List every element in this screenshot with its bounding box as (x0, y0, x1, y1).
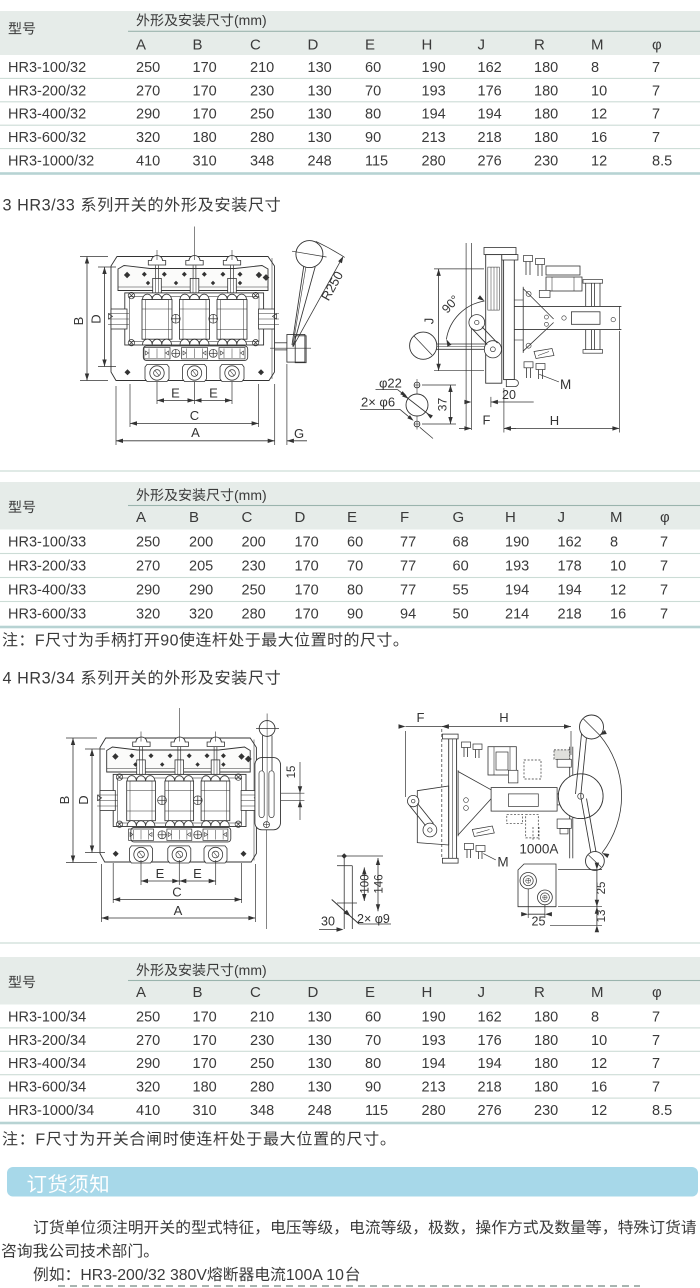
svg-text:230: 230 (242, 559, 266, 575)
svg-text:8: 8 (610, 535, 618, 551)
svg-text:2× φ9: 2× φ9 (357, 912, 390, 926)
svg-text:7: 7 (652, 60, 660, 76)
svg-text:320: 320 (136, 130, 160, 146)
svg-text:HR3-1000/32: HR3-1000/32 (8, 154, 94, 170)
svg-text:(mm): (mm) (234, 962, 267, 978)
svg-text:16: 16 (591, 1080, 607, 1096)
svg-text:HR3-600/33: HR3-600/33 (8, 607, 86, 623)
svg-text:8.5: 8.5 (652, 1103, 672, 1119)
svg-text:A: A (174, 903, 183, 918)
svg-text:B: B (57, 796, 72, 805)
svg-text:180: 180 (534, 83, 558, 99)
svg-text:180: 180 (193, 130, 217, 146)
svg-text:D: D (308, 984, 319, 1001)
svg-text:170: 170 (295, 559, 319, 575)
svg-text:HR3-200/32 380V: HR3-200/32 380V (80, 1267, 207, 1284)
svg-text:φ: φ (652, 984, 662, 1001)
svg-text:H: H (550, 413, 559, 428)
svg-text:7: 7 (652, 130, 660, 146)
svg-text:R: R (534, 984, 545, 1001)
svg-text:B: B (193, 37, 203, 54)
svg-text:194: 194 (422, 107, 446, 123)
svg-text:194: 194 (558, 583, 582, 599)
svg-text:193: 193 (505, 559, 529, 575)
svg-text:1000A: 1000A (519, 842, 558, 857)
svg-text:190: 190 (505, 535, 529, 551)
svg-text:7: 7 (660, 583, 668, 599)
svg-text:193: 193 (422, 1033, 446, 1049)
svg-text:60: 60 (365, 60, 381, 76)
svg-text:180: 180 (534, 1033, 558, 1049)
svg-text:320: 320 (136, 607, 160, 623)
svg-text:37: 37 (436, 398, 450, 412)
svg-text:348: 348 (250, 1103, 274, 1119)
svg-text:248: 248 (308, 1103, 332, 1119)
svg-text:170: 170 (193, 1009, 217, 1025)
svg-text:M: M (560, 377, 571, 392)
svg-text:A: A (136, 984, 146, 1001)
svg-text:A: A (136, 509, 146, 526)
svg-text:180: 180 (534, 107, 558, 123)
svg-text:M: M (497, 854, 508, 869)
svg-text:8: 8 (591, 60, 599, 76)
svg-text:12: 12 (591, 1103, 607, 1119)
svg-text:170: 170 (295, 583, 319, 599)
svg-text:E: E (365, 37, 375, 54)
svg-text:E: E (365, 984, 375, 1001)
svg-text:50: 50 (453, 607, 469, 623)
svg-text:80: 80 (347, 583, 363, 599)
svg-text:A: A (136, 37, 146, 54)
svg-text:B: B (71, 317, 86, 326)
svg-text:77: 77 (400, 583, 416, 599)
svg-text:250: 250 (250, 107, 274, 123)
svg-text:H: H (422, 37, 433, 54)
svg-text:210: 210 (250, 60, 274, 76)
svg-text:G: G (294, 426, 304, 441)
svg-text:194: 194 (422, 1056, 446, 1072)
svg-text:176: 176 (478, 83, 502, 99)
svg-text:180: 180 (534, 1056, 558, 1072)
svg-text:290: 290 (136, 107, 160, 123)
svg-text:100A 10: 100A 10 (286, 1267, 344, 1284)
svg-text:HR3-400/32: HR3-400/32 (8, 107, 86, 123)
svg-text:180: 180 (534, 60, 558, 76)
svg-text:HR3-100/32: HR3-100/32 (8, 60, 86, 76)
svg-text:13: 13 (596, 910, 608, 923)
svg-text:12: 12 (591, 1056, 607, 1072)
svg-text:(mm): (mm) (234, 12, 267, 28)
svg-text:25: 25 (532, 915, 546, 929)
svg-text:16: 16 (610, 607, 626, 623)
svg-text:55: 55 (453, 583, 469, 599)
svg-text:180: 180 (534, 1009, 558, 1025)
svg-text:170: 170 (193, 1056, 217, 1072)
svg-text:250: 250 (136, 60, 160, 76)
svg-text:162: 162 (478, 60, 502, 76)
svg-text:8.5: 8.5 (652, 154, 672, 170)
svg-text:410: 410 (136, 1103, 160, 1119)
svg-text:230: 230 (534, 1103, 558, 1119)
svg-text:16: 16 (591, 130, 607, 146)
svg-text:φ22: φ22 (379, 375, 402, 390)
svg-text:φ: φ (652, 37, 662, 54)
svg-text:190: 190 (422, 60, 446, 76)
svg-text:130: 130 (308, 1056, 332, 1072)
svg-text:130: 130 (308, 1009, 332, 1025)
svg-text:J: J (558, 509, 566, 526)
svg-text:F: F (35, 633, 45, 650)
svg-text:170: 170 (295, 607, 319, 623)
svg-text:80: 80 (365, 107, 381, 123)
svg-text:60: 60 (347, 535, 363, 551)
svg-text:170: 170 (193, 83, 217, 99)
svg-text:200: 200 (189, 535, 213, 551)
svg-text:HR3-100/34: HR3-100/34 (8, 1009, 86, 1025)
svg-text:E: E (156, 866, 165, 881)
svg-text:A: A (191, 425, 200, 440)
svg-text:193: 193 (422, 83, 446, 99)
svg-text:115: 115 (365, 1103, 388, 1119)
svg-text:218: 218 (558, 607, 582, 623)
svg-text:130: 130 (308, 107, 332, 123)
svg-text:2× φ6: 2× φ6 (361, 394, 395, 409)
svg-text:410: 410 (136, 154, 160, 170)
svg-text:218: 218 (478, 1080, 502, 1096)
svg-text:10: 10 (610, 559, 626, 575)
svg-text:250: 250 (136, 1009, 160, 1025)
svg-text:M: M (610, 509, 623, 526)
svg-text:290: 290 (136, 583, 160, 599)
svg-text:310: 310 (193, 154, 217, 170)
svg-text:170: 170 (193, 107, 217, 123)
svg-text:180: 180 (534, 130, 558, 146)
svg-text:HR3-200/34: HR3-200/34 (8, 1033, 86, 1049)
svg-text:94: 94 (400, 607, 416, 623)
svg-text:D: D (295, 509, 306, 526)
svg-text:310: 310 (193, 1103, 217, 1119)
svg-text:90°: 90° (439, 293, 462, 316)
svg-text:230: 230 (250, 83, 274, 99)
svg-text:C: C (250, 37, 261, 54)
svg-text:200: 200 (242, 535, 266, 551)
svg-text:90: 90 (365, 130, 381, 146)
svg-text:J: J (478, 37, 486, 54)
svg-text:12: 12 (610, 583, 626, 599)
svg-text:180: 180 (193, 1080, 217, 1096)
svg-text:270: 270 (136, 83, 160, 99)
svg-text:90: 90 (365, 1080, 381, 1096)
svg-text:162: 162 (558, 535, 582, 551)
svg-text:7: 7 (652, 1009, 660, 1025)
svg-text:170: 170 (193, 1033, 217, 1049)
svg-text:R250: R250 (318, 269, 346, 303)
svg-text:80: 80 (365, 1056, 381, 1072)
svg-text:7: 7 (652, 1033, 660, 1049)
svg-text:320: 320 (136, 1080, 160, 1096)
svg-text:290: 290 (189, 583, 213, 599)
svg-text:280: 280 (250, 1080, 274, 1096)
svg-text:HR3-400/34: HR3-400/34 (8, 1056, 86, 1072)
svg-text:E: E (171, 386, 180, 401)
svg-text:M: M (591, 37, 604, 54)
svg-text:170: 170 (193, 60, 217, 76)
svg-text:12: 12 (591, 154, 607, 170)
svg-text:φ: φ (660, 509, 670, 526)
svg-text:60: 60 (453, 559, 469, 575)
svg-text:C: C (242, 509, 253, 526)
svg-text:25: 25 (596, 882, 608, 895)
svg-text:HR3-1000/34: HR3-1000/34 (8, 1103, 94, 1119)
svg-text:176: 176 (478, 1033, 502, 1049)
svg-text:F: F (483, 413, 491, 428)
svg-text:290: 290 (136, 1056, 160, 1072)
svg-text:10: 10 (591, 83, 607, 99)
svg-text:276: 276 (478, 154, 502, 170)
svg-text:HR3-600/32: HR3-600/32 (8, 130, 86, 146)
svg-text:100: 100 (360, 874, 372, 893)
svg-text:77: 77 (400, 535, 416, 551)
svg-text:130: 130 (308, 83, 332, 99)
svg-text:F: F (35, 1132, 45, 1149)
svg-text:HR3-200/33: HR3-200/33 (8, 559, 86, 575)
svg-text:30: 30 (321, 915, 335, 929)
svg-text:190: 190 (422, 1009, 446, 1025)
svg-text:213: 213 (422, 130, 446, 146)
svg-text:270: 270 (136, 1033, 160, 1049)
svg-text:90: 90 (347, 607, 363, 623)
svg-text:70: 70 (365, 1033, 381, 1049)
svg-text:M: M (591, 984, 604, 1001)
svg-text:130: 130 (308, 130, 332, 146)
svg-text:280: 280 (250, 130, 274, 146)
svg-text:D: D (89, 314, 104, 323)
svg-text:7: 7 (652, 1056, 660, 1072)
svg-text:194: 194 (505, 583, 529, 599)
svg-text:B: B (193, 984, 203, 1001)
svg-text:H: H (422, 984, 433, 1001)
svg-text:D: D (76, 795, 91, 804)
svg-text:115: 115 (365, 154, 388, 170)
svg-text:7: 7 (660, 607, 668, 623)
svg-text:(mm): (mm) (234, 487, 267, 503)
svg-text:HR3-400/33: HR3-400/33 (8, 583, 86, 599)
svg-text:194: 194 (478, 107, 502, 123)
svg-text:7: 7 (660, 559, 668, 575)
svg-text:130: 130 (308, 1033, 332, 1049)
svg-text:230: 230 (534, 154, 558, 170)
svg-text:280: 280 (242, 607, 266, 623)
svg-text:210: 210 (250, 1009, 274, 1025)
svg-text:E: E (347, 509, 357, 526)
svg-text:270: 270 (136, 559, 160, 575)
svg-text:F: F (400, 509, 409, 526)
svg-text:4 HR3/34: 4 HR3/34 (3, 670, 76, 688)
svg-text:276: 276 (478, 1103, 502, 1119)
svg-text:248: 248 (308, 154, 332, 170)
svg-text:7: 7 (652, 1080, 660, 1096)
svg-text:H: H (505, 509, 516, 526)
svg-text:170: 170 (295, 535, 319, 551)
svg-text:15: 15 (286, 766, 298, 779)
svg-text:E: E (209, 386, 218, 401)
svg-text:180: 180 (534, 1080, 558, 1096)
svg-text:D: D (308, 37, 319, 54)
svg-text:250: 250 (250, 1056, 274, 1072)
svg-text:130: 130 (308, 60, 332, 76)
svg-text:68: 68 (453, 535, 469, 551)
svg-text:10: 10 (591, 1033, 607, 1049)
svg-text:280: 280 (422, 154, 446, 170)
svg-text:3 HR3/33: 3 HR3/33 (3, 197, 76, 215)
svg-text:HR3-100/33: HR3-100/33 (8, 535, 86, 551)
svg-text:218: 218 (478, 130, 502, 146)
svg-text:178: 178 (558, 559, 582, 575)
svg-text:F: F (417, 710, 425, 725)
svg-text:7: 7 (652, 107, 660, 123)
svg-text:250: 250 (136, 535, 160, 551)
svg-text:280: 280 (422, 1103, 446, 1119)
svg-text:214: 214 (505, 607, 529, 623)
svg-text:70: 70 (365, 83, 381, 99)
svg-text:G: G (453, 509, 465, 526)
svg-text:230: 230 (250, 1033, 274, 1049)
svg-text:12: 12 (591, 107, 607, 123)
svg-text:J: J (478, 984, 486, 1001)
svg-text:194: 194 (478, 1056, 502, 1072)
svg-text:7: 7 (660, 535, 668, 551)
svg-text:B: B (189, 509, 199, 526)
svg-text:90: 90 (160, 633, 179, 650)
svg-text:77: 77 (400, 559, 416, 575)
svg-text:60: 60 (365, 1009, 381, 1025)
svg-text:8: 8 (591, 1009, 599, 1025)
svg-text:130: 130 (308, 1080, 332, 1096)
svg-text:C: C (250, 984, 261, 1001)
svg-text:R: R (534, 37, 545, 54)
svg-text:146: 146 (374, 874, 386, 893)
svg-text:320: 320 (189, 607, 213, 623)
svg-text:HR3-200/32: HR3-200/32 (8, 83, 86, 99)
svg-text:250: 250 (242, 583, 266, 599)
svg-text:348: 348 (250, 154, 274, 170)
svg-text:70: 70 (347, 559, 363, 575)
svg-text:7: 7 (652, 83, 660, 99)
svg-text:C: C (190, 408, 199, 423)
svg-text:213: 213 (422, 1080, 446, 1096)
svg-text:E: E (193, 866, 202, 881)
svg-text:H: H (499, 710, 508, 725)
svg-text:C: C (172, 885, 181, 900)
svg-text:205: 205 (189, 559, 213, 575)
svg-text:162: 162 (478, 1009, 502, 1025)
svg-text:HR3-600/34: HR3-600/34 (8, 1080, 86, 1096)
svg-text:J: J (422, 318, 437, 325)
